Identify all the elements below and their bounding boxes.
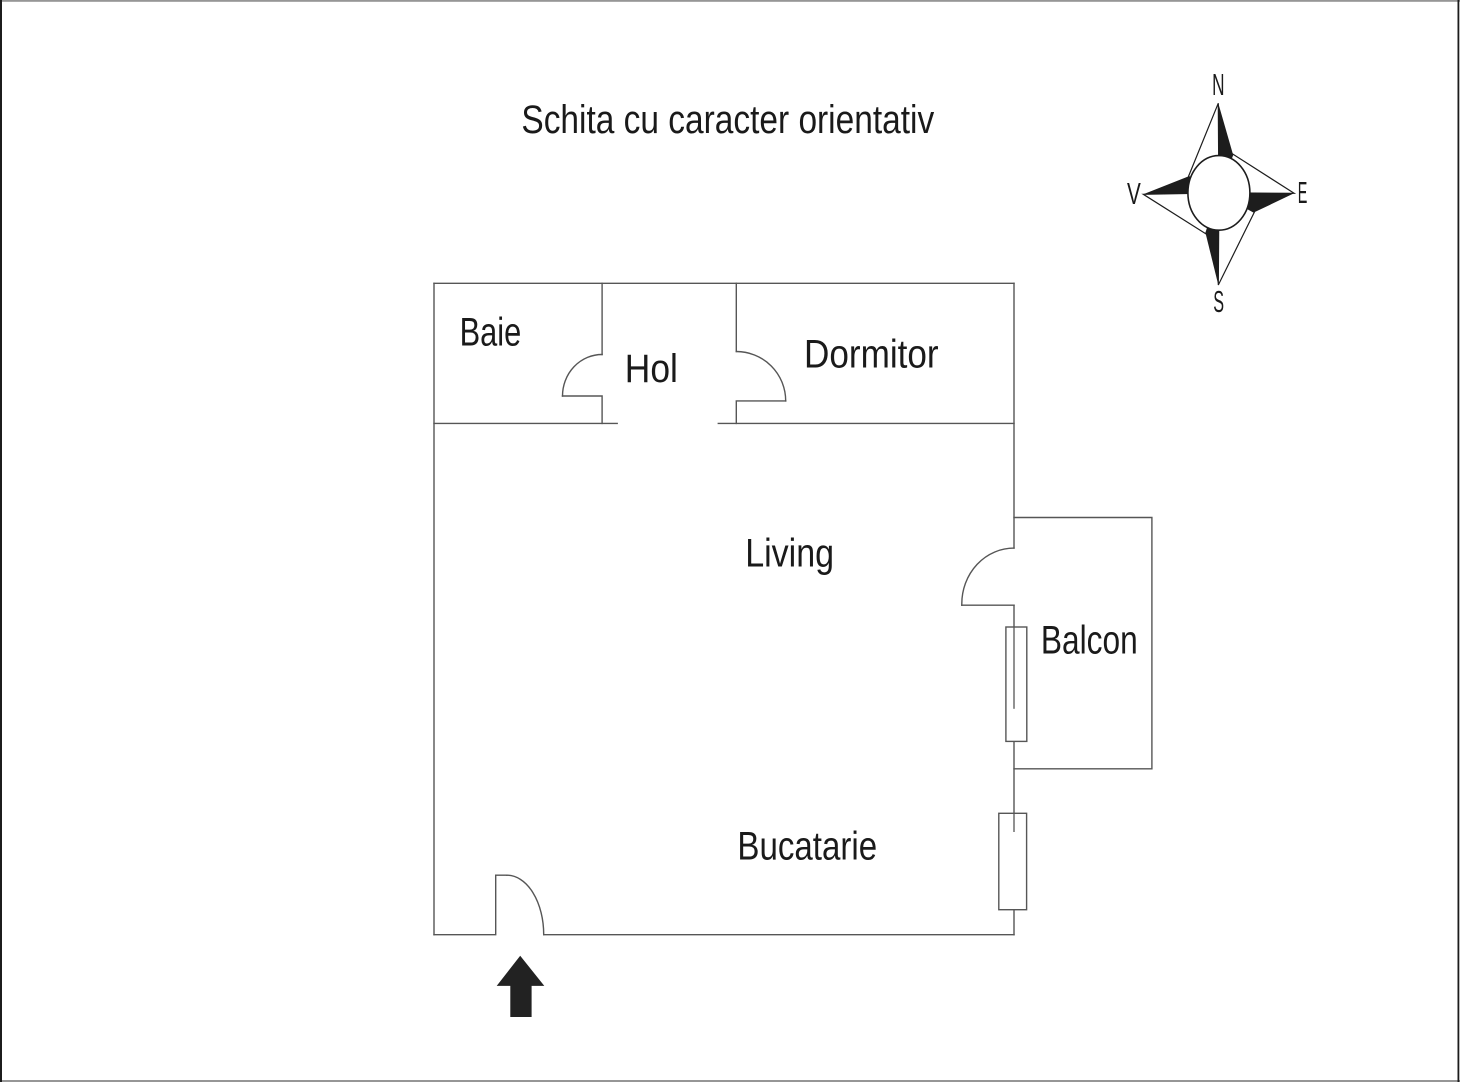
svg-text:Living: Living — [745, 532, 834, 576]
svg-text:Balcon: Balcon — [1041, 619, 1138, 663]
svg-text:Dormitor: Dormitor — [804, 333, 939, 377]
svg-text:Hol: Hol — [625, 347, 678, 391]
svg-text:Bucatarie: Bucatarie — [737, 825, 877, 869]
svg-text:N: N — [1212, 67, 1224, 102]
svg-text:S: S — [1213, 284, 1224, 319]
svg-text:Baie: Baie — [460, 311, 522, 355]
svg-text:V: V — [1127, 176, 1141, 211]
svg-text:E: E — [1298, 175, 1308, 210]
svg-text:Schita cu caracter orientativ: Schita cu caracter orientativ — [521, 98, 934, 142]
